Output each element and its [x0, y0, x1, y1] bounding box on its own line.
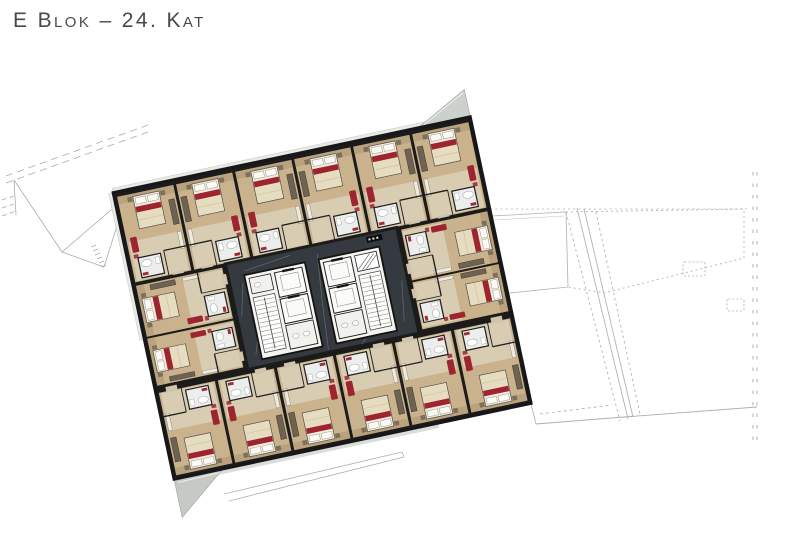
ramp-tick-marks	[91, 245, 106, 267]
floor-plan-canvas	[0, 0, 800, 542]
floor-plan-page: E Blok – 24. Kat	[0, 0, 800, 542]
building-plan	[103, 89, 539, 518]
